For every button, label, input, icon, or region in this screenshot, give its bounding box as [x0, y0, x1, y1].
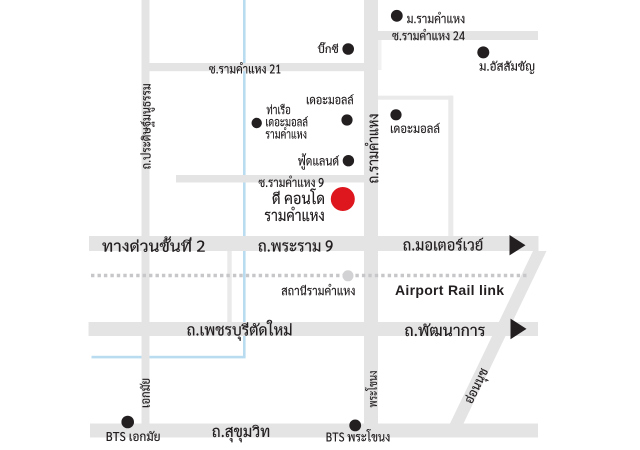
- svg-text:Airport Rail link: Airport Rail link: [395, 282, 504, 298]
